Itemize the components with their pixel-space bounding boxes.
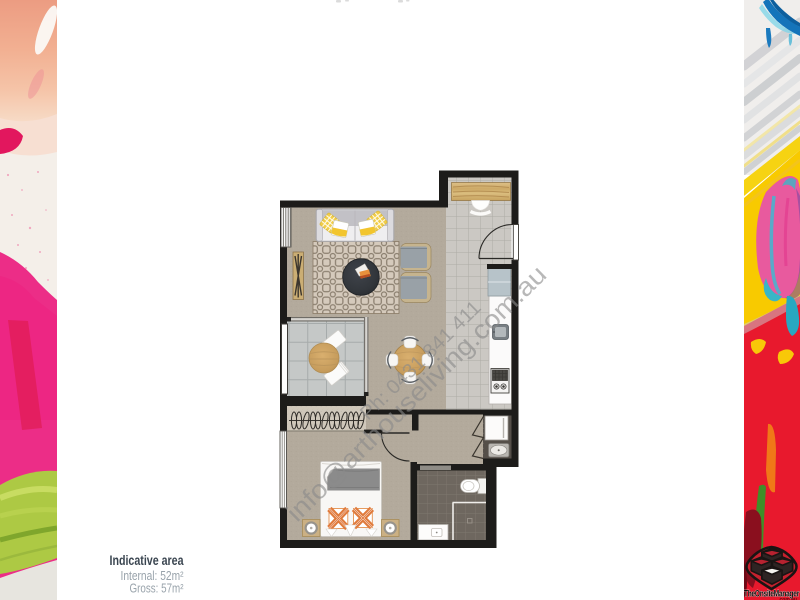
svg-text:Gross: 57m²: Gross: 57m² — [130, 582, 184, 596]
svg-text:Indicative area: Indicative area — [110, 552, 184, 568]
